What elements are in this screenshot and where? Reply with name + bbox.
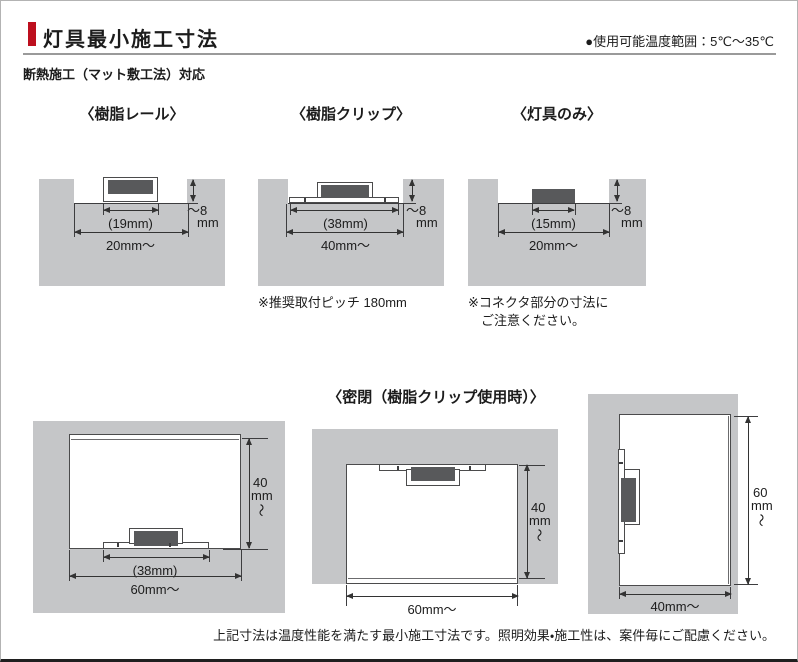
fixture-body (108, 180, 153, 194)
outer-dim-arrow (499, 232, 609, 233)
outer-dim-arrow (620, 594, 731, 595)
connector-note-line1: ※コネクタ部分の寸法に (468, 292, 608, 311)
clip-screw-tick (619, 462, 623, 464)
panel-line (348, 578, 516, 579)
diagram-title-fixture-only: 〈灯具のみ〉 (468, 103, 646, 124)
panel-line (728, 416, 729, 584)
fixture-body (411, 467, 455, 482)
depth-dim-unit: mm (416, 216, 438, 230)
ext-line (519, 578, 545, 579)
inner-dim-arrow (533, 210, 574, 211)
insulation-method-subtitle: 断熱施工（マット敷工法）対応 (23, 64, 205, 83)
ext-line (519, 465, 545, 466)
diagram-resin-rail: ～8 mm (19mm) 20mm～ (39, 179, 225, 286)
notch-bottom-line (498, 203, 622, 204)
clip-screw-tick (397, 466, 399, 470)
inner-dim-arrow (104, 210, 158, 211)
outer-dim-label: 40mm～ (619, 600, 731, 614)
inner-dim-arrow (104, 557, 209, 558)
sealed-section-title: 〈密閉（樹脂クリップ使用時）〉 (281, 386, 591, 407)
clip-screw-tick (619, 540, 623, 542)
height-dim-tilde: ～ (531, 529, 545, 542)
outer-dim-label: 20mm～ (74, 239, 187, 253)
panel-line (71, 439, 239, 440)
clip-screw-tick (304, 198, 306, 202)
diagram-title-resin-rail: 〈樹脂レール〉 (39, 103, 225, 124)
diagram-sealed-up: 40 mm ～ (38mm) 60mm～ (33, 421, 303, 613)
clip-screw-tick (469, 466, 471, 470)
inner-dim-label: (38mm) (288, 217, 403, 231)
inner-dim-arrow (291, 210, 398, 211)
fixture-body (532, 189, 575, 203)
inner-dim-label: (15mm) (498, 217, 609, 231)
height-dim-arrow (527, 465, 528, 578)
outer-dim-arrow (75, 232, 188, 233)
depth-dim-arrow (412, 180, 413, 201)
diagram-resin-clip: ～8 mm (38mm) 40mm～ (258, 179, 444, 286)
diagram-title-resin-clip: 〈樹脂クリップ〉 (258, 103, 444, 124)
inner-dim-label: (19mm) (74, 217, 187, 231)
diagram-sealed-side: 60 mm ～ 40mm～ (588, 394, 798, 614)
outer-dim-label: 60mm～ (69, 583, 241, 597)
page-title: 灯具最小施工寸法 (43, 23, 219, 52)
outer-dim-label: 20mm～ (498, 239, 609, 253)
height-dim-arrow (249, 439, 250, 548)
outer-dim-label: 40mm～ (288, 239, 403, 253)
depth-dim-unit: mm (197, 216, 219, 230)
depth-dim-arrow (617, 180, 618, 201)
fixture-body (621, 478, 636, 522)
clip-pitch-note: ※推奨取付ピッチ 180mm (258, 292, 407, 311)
ext-line (575, 204, 576, 215)
clip-screw-tick (384, 198, 386, 202)
outer-dim-label: 60mm～ (346, 603, 518, 617)
notch-bottom-line (74, 203, 198, 204)
height-dim-unit: mm (751, 499, 773, 513)
fixture-body (134, 531, 178, 546)
clip-screw-tick (117, 543, 119, 547)
spec-sheet-page: 灯具最小施工寸法 ●使用可能温度範囲：5℃～35℃ 断熱施工（マット敷工法）対応… (0, 0, 798, 662)
diagram-fixture-only: ～8 mm (15mm) 20mm～ (468, 179, 646, 286)
temperature-range-note: ●使用可能温度範囲：5℃～35℃ (585, 31, 774, 50)
diagram-sealed-down: 40 mm ～ 60mm～ (312, 429, 582, 621)
connector-note-line2: ご注意ください。 (481, 310, 585, 329)
outer-dim-arrow (347, 596, 518, 597)
outer-dim-arrow (287, 232, 403, 233)
height-dim-unit: mm (251, 489, 273, 503)
height-dim-tilde: ～ (253, 504, 267, 517)
clip-screw-tick (169, 543, 171, 547)
height-dim-unit: mm (529, 514, 551, 528)
fixture-body (321, 185, 369, 198)
depth-dim-arrow (193, 180, 194, 201)
accent-bar (28, 22, 36, 46)
height-dim-arrow (748, 417, 749, 584)
height-dim-tilde: ～ (753, 514, 767, 527)
depth-dim-unit: mm (621, 216, 643, 230)
footer-note: 上記寸法は温度性能を満たす最小施工寸法です。照明効果・施工性は、案件毎にご配慮く… (213, 625, 775, 644)
header-divider (23, 53, 776, 55)
outer-dim-arrow (70, 576, 241, 577)
